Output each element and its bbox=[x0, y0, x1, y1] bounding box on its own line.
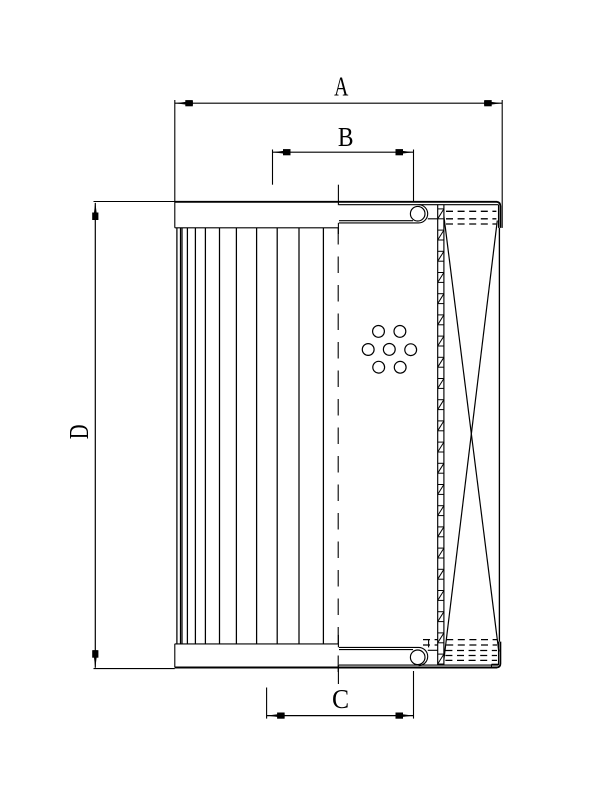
svg-text:D: D bbox=[66, 424, 95, 439]
svg-text:B: B bbox=[338, 122, 354, 152]
svg-text:A: A bbox=[334, 73, 348, 103]
svg-text:C: C bbox=[332, 684, 349, 714]
